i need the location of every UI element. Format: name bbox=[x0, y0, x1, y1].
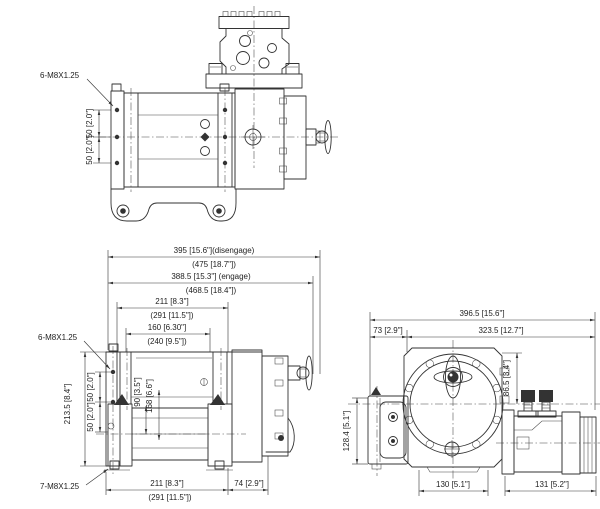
drawing-canvas: 6-M8X1.25 50 [2.0"] 50 [2.0"] 395 [15.6"… bbox=[0, 0, 600, 509]
dim-top-50-b: 50 [2.0"] bbox=[85, 135, 94, 165]
front-bottom-dims: 211 [8.3"] 74 [2.9"] (291 [11.5"]) bbox=[106, 456, 268, 502]
top-bolt-callout: 6-M8X1.25 bbox=[40, 71, 113, 106]
winch-dimension-drawing: 6-M8X1.25 50 [2.0"] 50 [2.0"] 395 [15.6"… bbox=[0, 0, 600, 509]
top-hole-pitch-dims: 50 [2.0"] 50 [2.0"] bbox=[85, 109, 111, 165]
dim-drum-width: 160 [6.30"] bbox=[148, 323, 186, 332]
winch-body-top bbox=[111, 84, 284, 192]
dim-front-74: 74 [2.9"] bbox=[234, 479, 264, 488]
side-bracket bbox=[368, 387, 408, 469]
dim-front-291: (291 [11.5"]) bbox=[148, 493, 191, 502]
side-view: 396.5 [15.6"] 73 [2.9"] 323.5 [12.7"] bbox=[342, 309, 600, 496]
front-bolt-callout-feet-label: 7-M8X1.25 bbox=[40, 482, 80, 491]
dim-side-73: 73 [2.9"] bbox=[373, 326, 403, 335]
hydraulic-motor-side-icon bbox=[502, 390, 596, 474]
dim-front-211: 211 [8.3"] bbox=[150, 479, 183, 488]
dim-side-323: 323.5 [12.7"] bbox=[478, 326, 523, 335]
dim-front-height: 213.5 [8.4"] bbox=[63, 384, 72, 425]
length-dimension-stack: 395 [15.6"](disengage) (475 [18.7"]) 388… bbox=[108, 246, 320, 374]
top-bolt-callout-label: 6-M8X1.25 bbox=[40, 71, 80, 80]
dim-side-130: 130 [5.1"] bbox=[436, 480, 470, 489]
dim-overall-disengage: 395 [15.6"](disengage) bbox=[174, 246, 255, 255]
drum-end-plate bbox=[403, 348, 509, 472]
dim-overall-engage: 388.5 [15.3"] (engage) bbox=[171, 272, 251, 281]
dim-front-50-a: 50 [2.0"] bbox=[86, 372, 95, 402]
dim-overall-engage-alt: (468.5 [18.4"]) bbox=[186, 286, 237, 295]
clutch-handle-front-icon bbox=[288, 356, 312, 390]
dim-side-86: 86.5 [3.4"] bbox=[502, 360, 511, 396]
clutch-handle-top-icon bbox=[280, 96, 332, 179]
dim-side-128: 128.4 [5.1"] bbox=[342, 411, 351, 452]
front-vertical-dims: 213.5 [8.4"] 50 [2.0"] 50 [2.0"] 90 [3.5… bbox=[63, 352, 159, 466]
dim-side-overall: 396.5 [15.6"] bbox=[459, 309, 504, 318]
dim-side-131: 131 [5.2"] bbox=[535, 480, 569, 489]
front-bolt-callout-side-label: 6-M8X1.25 bbox=[38, 333, 78, 342]
dim-flange-width: 211 [8.3"] bbox=[155, 297, 188, 306]
dim-drum-width-alt: (240 [9.5"]) bbox=[147, 337, 187, 346]
dim-overall-disengage-alt: (475 [18.7"]) bbox=[192, 260, 236, 269]
mounting-feet-top bbox=[111, 189, 236, 221]
dim-front-168: 168 [6.6"] bbox=[145, 379, 154, 413]
dim-front-90: 90 [3.5"] bbox=[133, 377, 142, 407]
dim-flange-width-alt: (291 [11.5"]) bbox=[150, 311, 193, 320]
dim-front-50-b: 50 [2.0"] bbox=[86, 402, 95, 432]
front-bolt-callout-feet: 7-M8X1.25 bbox=[40, 469, 108, 491]
top-view: 6-M8X1.25 50 [2.0"] 50 [2.0"] bbox=[40, 6, 338, 221]
front-bolt-callout-side: 6-M8X1.25 bbox=[38, 333, 110, 369]
breather-icon bbox=[371, 387, 381, 395]
front-view: 6-M8X1.25 7-M8X1.25 213.5 [8.4"] 50 [2.0… bbox=[38, 333, 312, 502]
dim-top-50-a: 50 [2.0"] bbox=[85, 109, 94, 139]
hydraulic-ports-icon bbox=[518, 390, 556, 417]
